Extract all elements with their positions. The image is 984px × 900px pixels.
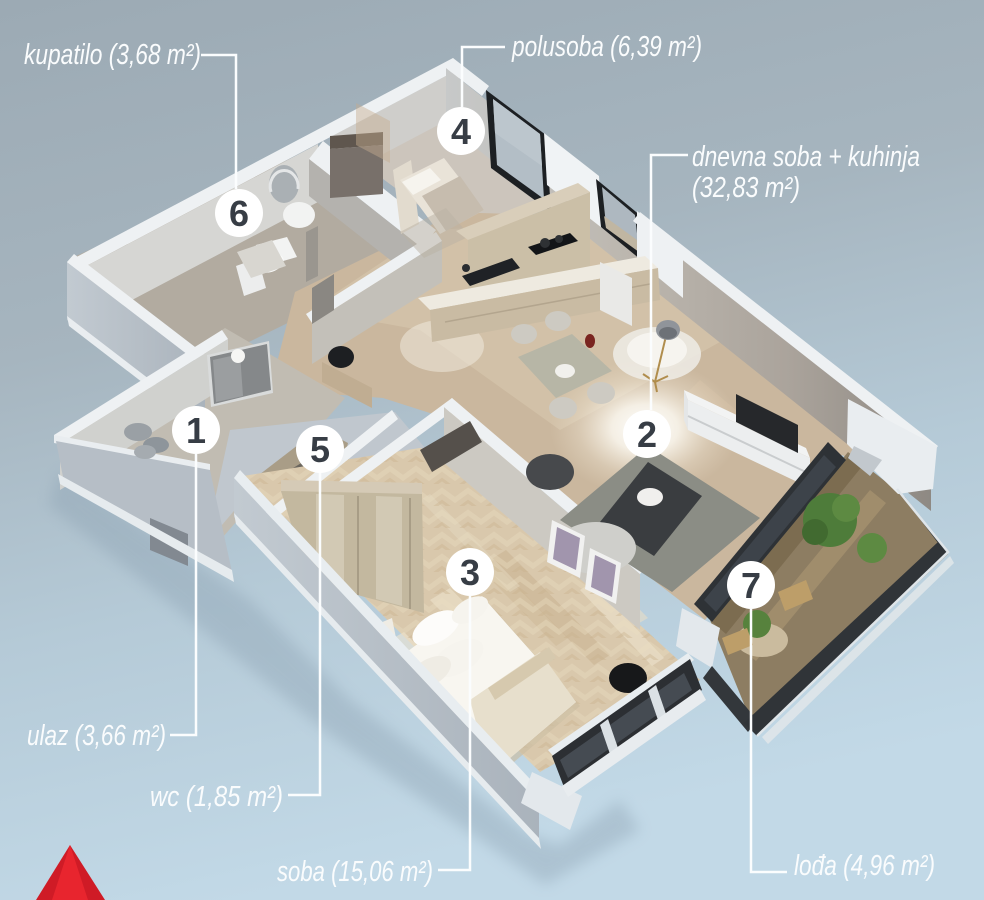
svg-text:1: 1 [186,410,206,451]
svg-text:(32,83 m²): (32,83 m²) [692,172,800,204]
svg-text:soba (15,06 m²): soba (15,06 m²) [277,856,433,888]
svg-text:dnevna soba + kuhinja: dnevna soba + kuhinja [692,141,920,173]
svg-text:6: 6 [229,193,249,234]
svg-text:4: 4 [451,111,471,152]
svg-text:5: 5 [310,429,330,470]
svg-text:lođa (4,96 m²): lođa (4,96 m²) [794,850,935,882]
svg-text:kupatilo (3,68 m²): kupatilo (3,68 m²) [24,39,201,71]
svg-text:ulaz (3,66 m²): ulaz (3,66 m²) [27,720,166,752]
svg-text:7: 7 [741,565,761,606]
svg-text:polusoba (6,39 m²): polusoba (6,39 m²) [511,31,702,63]
svg-text:2: 2 [637,414,657,455]
svg-text:wc (1,85 m²): wc (1,85 m²) [150,781,283,813]
svg-text:3: 3 [460,552,480,593]
